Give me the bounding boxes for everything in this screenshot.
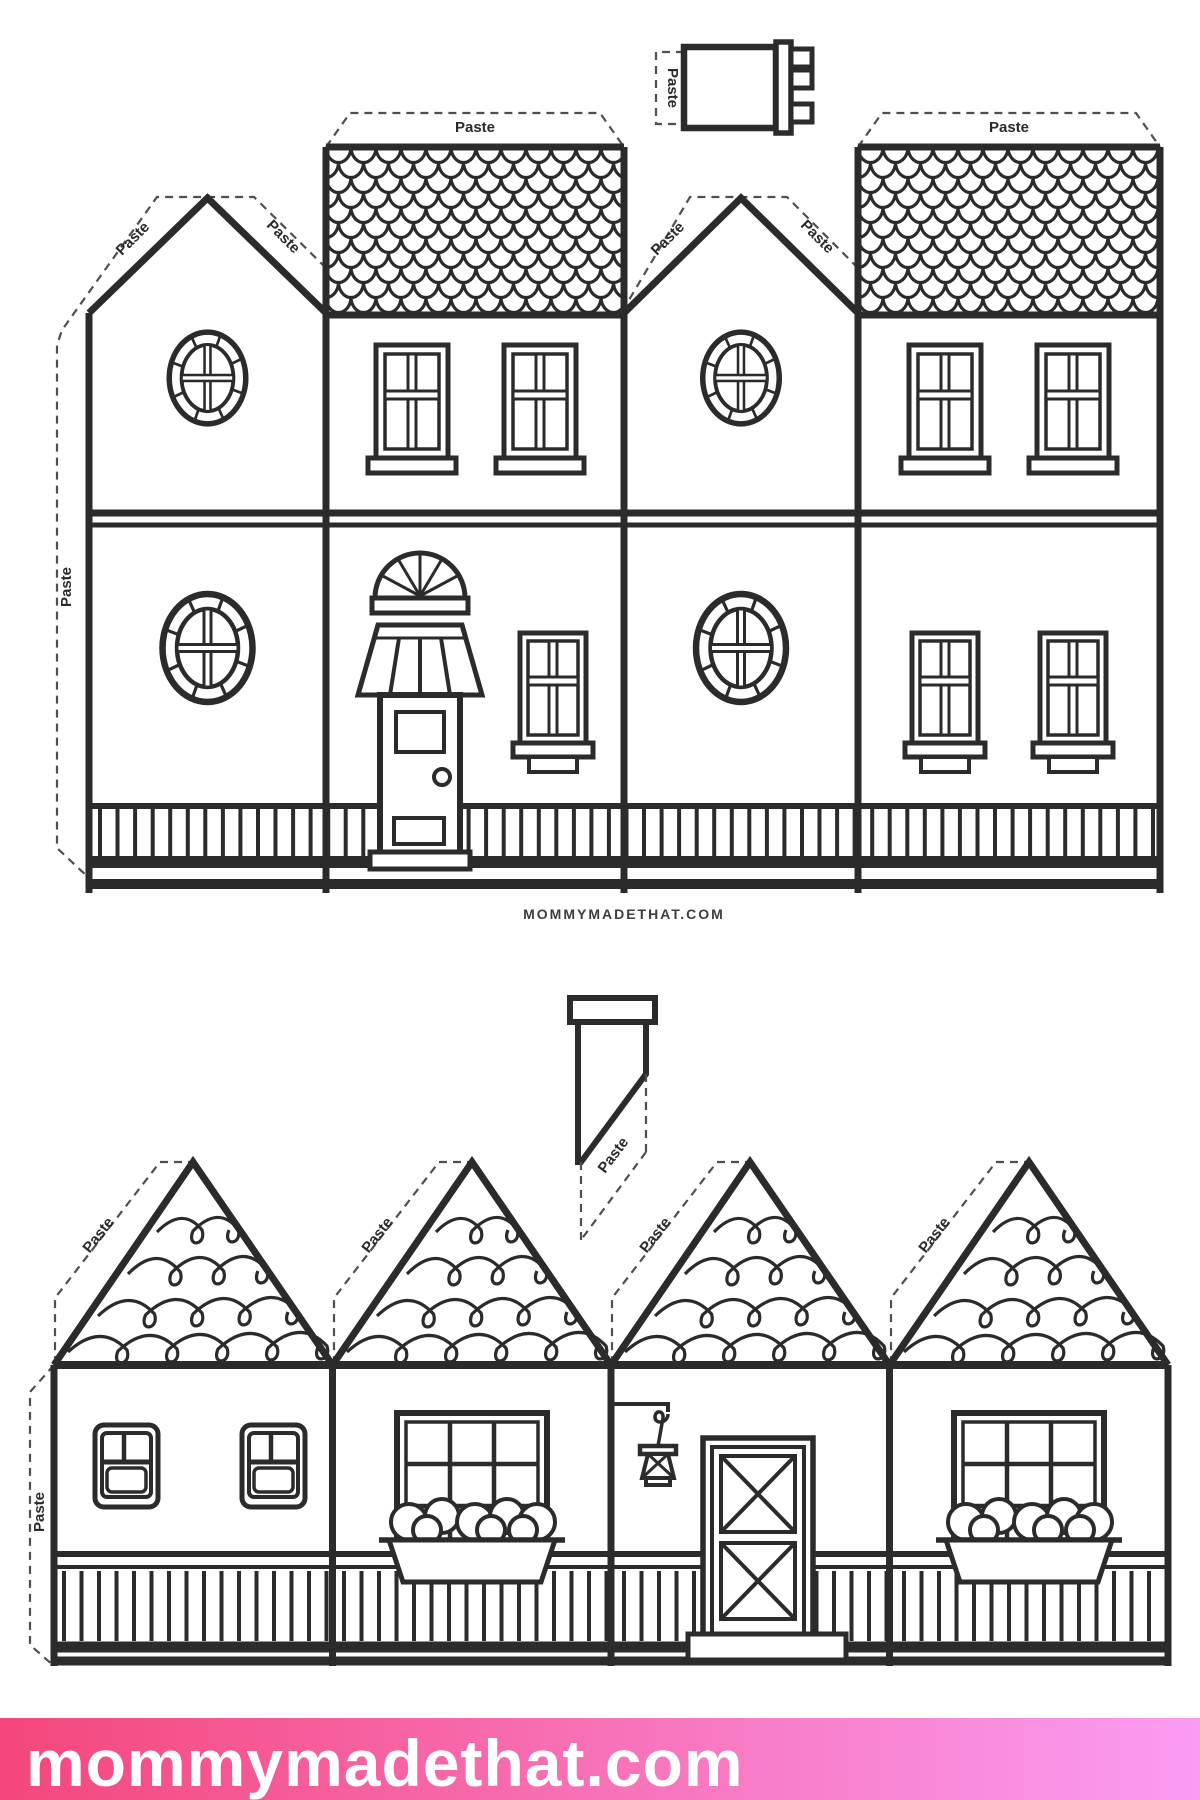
paste-label: Paste xyxy=(797,217,837,257)
window xyxy=(242,1425,305,1507)
entrance xyxy=(358,553,482,869)
paste-label: Paste xyxy=(263,217,303,257)
chimney-1-body xyxy=(684,47,776,128)
window xyxy=(496,345,584,473)
front-door xyxy=(370,695,470,869)
barn-door xyxy=(688,1438,846,1660)
watermark-text: MOMMYMADETHAT.COM xyxy=(523,906,725,922)
flower-box xyxy=(936,1499,1122,1582)
paste-label: Paste xyxy=(31,1492,48,1532)
banner-text: mommymadethat.com xyxy=(26,1726,744,1800)
shingle-roof-1 xyxy=(301,147,664,328)
window xyxy=(513,633,593,772)
round-window xyxy=(703,332,780,424)
paste-label: Paste xyxy=(915,1214,953,1256)
paste-label: Paste xyxy=(79,1214,117,1256)
window xyxy=(905,633,985,772)
window xyxy=(1033,633,1113,772)
porch-lantern xyxy=(611,1404,676,1485)
round-window xyxy=(163,594,253,702)
window xyxy=(1029,345,1117,473)
window xyxy=(901,345,989,473)
flower-box xyxy=(379,1499,565,1582)
template-1-outline xyxy=(89,147,1160,893)
paste-label: Paste xyxy=(989,119,1029,136)
paper-house-templates-svg: Paste Paste Paste Paste Paste Paste Past… xyxy=(0,0,1200,1800)
chimney-piece-1: Paste xyxy=(656,42,812,133)
door-step xyxy=(688,1634,846,1660)
house-template-2: Paste Paste Paste Paste Paste Paste xyxy=(30,998,1168,1666)
paste-label: Paste xyxy=(58,567,75,607)
shingle-roof-2 xyxy=(833,147,1200,328)
site-banner: mommymadethat.com xyxy=(0,1718,1200,1800)
paste-label: Paste xyxy=(636,1214,674,1256)
paste-label: Paste xyxy=(664,68,681,108)
printable-craft-sheet: Paste Paste Paste Paste Paste Paste Past… xyxy=(0,0,1200,1800)
chimney-piece-2: Paste xyxy=(570,998,655,1240)
window xyxy=(368,345,456,473)
round-window xyxy=(169,332,246,424)
house-template-1: Paste Paste Paste Paste Paste Paste Past… xyxy=(57,42,1200,893)
window xyxy=(95,1425,158,1507)
awning xyxy=(358,625,482,695)
paste-label: Paste xyxy=(455,119,495,136)
paste-label: Paste xyxy=(358,1214,396,1256)
roof-garlands xyxy=(68,1217,1164,1362)
round-window xyxy=(696,594,786,702)
